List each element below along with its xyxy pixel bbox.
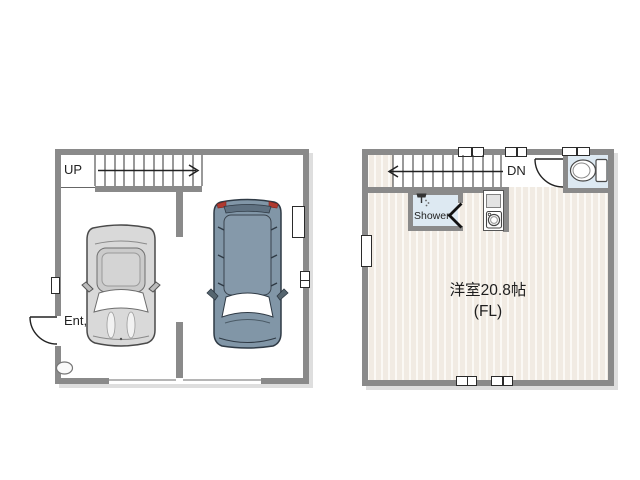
- toilet-wall: [563, 188, 608, 193]
- garage-partition-wall: [176, 192, 183, 237]
- window: [491, 376, 513, 386]
- toilet-room-floor: [568, 155, 608, 188]
- room-floor-note: (FL): [418, 303, 558, 321]
- window: [51, 277, 60, 294]
- stair-hall-floor: [393, 155, 563, 187]
- window-tick: [502, 376, 504, 386]
- window: [292, 206, 305, 238]
- wall-segment: [55, 149, 309, 155]
- garage-door-opening: [183, 379, 261, 381]
- wall-segment: [261, 378, 309, 384]
- window-tick: [467, 376, 469, 386]
- wall-segment: [362, 149, 368, 386]
- window: [562, 147, 590, 156]
- shower-wall: [408, 190, 413, 231]
- window: [361, 235, 372, 267]
- window: [458, 147, 484, 157]
- shower-wall: [408, 226, 463, 231]
- shower-label: Shower: [414, 210, 450, 222]
- shower-wall: [408, 190, 463, 195]
- wall-segment: [303, 149, 309, 384]
- window-tick: [516, 147, 518, 157]
- floorplan-canvas: UP Ent, DN Shower 洋室20.8帖 (FL): [0, 0, 640, 480]
- window: [456, 376, 477, 386]
- wall-segment: [608, 149, 614, 386]
- counter-icon: [486, 194, 501, 208]
- entrance-label: Ent,: [64, 313, 87, 328]
- window: [300, 271, 310, 288]
- garage-door-opening: [109, 379, 176, 381]
- stairs-up-label: UP: [64, 162, 82, 177]
- room-name-label: 洋室20.8帖: [418, 278, 558, 300]
- wall-segment: [55, 378, 109, 384]
- wall-segment: [55, 149, 61, 384]
- garage-partition-wall: [176, 322, 183, 378]
- stairs-down-label: DN: [507, 163, 526, 178]
- window-tick: [576, 147, 578, 156]
- window-tick: [300, 280, 310, 282]
- window: [505, 147, 527, 157]
- window-tick: [471, 147, 473, 157]
- entrance-door-swing-icon: [30, 317, 57, 344]
- stair-enclosure-wall: [95, 186, 202, 192]
- shower-wall: [458, 190, 463, 203]
- entrance-opening: [55, 316, 61, 346]
- wall-segment: [362, 380, 614, 386]
